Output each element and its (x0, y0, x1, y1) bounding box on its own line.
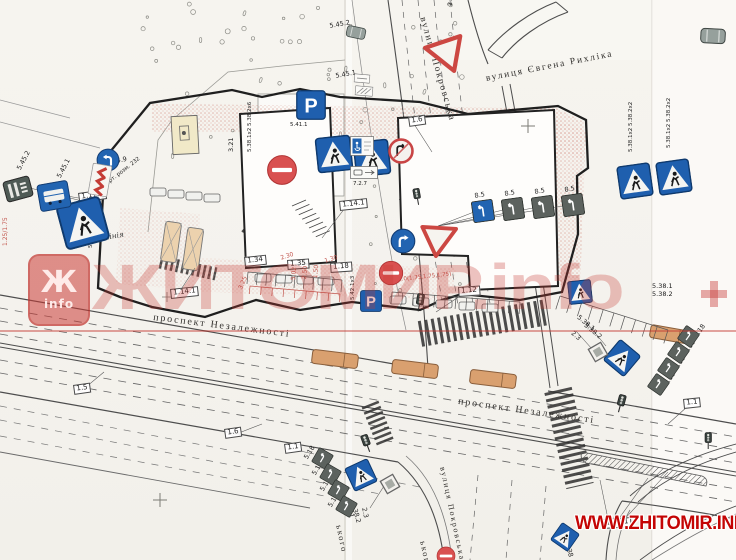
watermark-logo: Ж info (28, 254, 90, 326)
car-icon (345, 24, 367, 41)
lane-direction-sign (561, 193, 586, 218)
traffic-light-icon (612, 393, 630, 415)
callout-label: 5.38.1х2 5.38.2х6 (247, 102, 253, 152)
watermark-cross-icon (701, 281, 727, 307)
parking-method-plate (350, 166, 378, 179)
street-name: ького (418, 540, 434, 560)
callout-label: 1.14.1 (339, 198, 368, 211)
callout-label: 3.21 (228, 138, 235, 152)
scanned-traffic-plan-page: проспект Незалежностіпроспект Незалежнос… (0, 0, 736, 560)
callout-label: 1.5 (73, 383, 91, 395)
info-plate (354, 73, 371, 83)
no-entry-sign (436, 546, 456, 560)
traffic-light-icon (357, 432, 376, 455)
callout-label: 1.6 (224, 427, 242, 439)
pedestrian-crossing-sign (616, 162, 654, 200)
callout-label: 7.2.7 (353, 181, 367, 187)
chevron-direction-sign (87, 163, 112, 198)
callout-label: 1.6 (408, 115, 426, 127)
pedestrian-crossing-sign (655, 158, 693, 196)
watermark-underline (0, 330, 736, 332)
callout-label: 5.45.1 (56, 158, 72, 180)
website-url: WWW.ZHITOMIR.INFO (575, 512, 736, 535)
callout-label: 1.25/1.75 (3, 217, 10, 246)
traffic-light-icon (702, 432, 714, 450)
yield-sign (416, 24, 469, 77)
callout-label: 1.1 (683, 397, 701, 408)
parking-sign: P (296, 90, 326, 120)
disabled-parking-plate (350, 136, 374, 156)
no-turn-sign (388, 138, 414, 164)
lane-direction-sign (531, 195, 556, 220)
callout-label: 5.38.1х2 5.38.2х2 (628, 102, 634, 152)
pedestrian-crossing-sign (314, 134, 354, 174)
traffic-light-icon (410, 187, 425, 207)
callout-label: 5.38.1х2 5.38.2х2 (666, 98, 672, 148)
car-icon (700, 27, 727, 44)
callout-label: 5.38.2 (652, 291, 673, 298)
callout-label: 2.1 (447, 0, 454, 6)
street-name: ького (334, 524, 350, 554)
callout-label: 5.45.2 (16, 150, 32, 172)
watermark-logo-sub: info (44, 297, 74, 311)
no-entry-sign (266, 154, 298, 186)
bus-stop-sign (36, 179, 72, 212)
svg-text:P: P (304, 96, 317, 118)
bus-timetable-sign (2, 175, 35, 203)
street-name: вулиця Євгена Рихліка (485, 49, 614, 84)
callout-label: 5.41.1 (290, 122, 308, 128)
street-name: проспект Незалежності (457, 396, 595, 426)
lane-direction-sign (471, 199, 496, 224)
shelter-plate (355, 85, 374, 97)
priority-road-sign (375, 469, 404, 498)
lane-direction-sign (501, 197, 526, 222)
watermark-text: ЖИТОМИР.info (92, 250, 622, 324)
callout-label: 1.1 (284, 442, 302, 454)
watermark-logo-letter: Ж (41, 269, 78, 298)
